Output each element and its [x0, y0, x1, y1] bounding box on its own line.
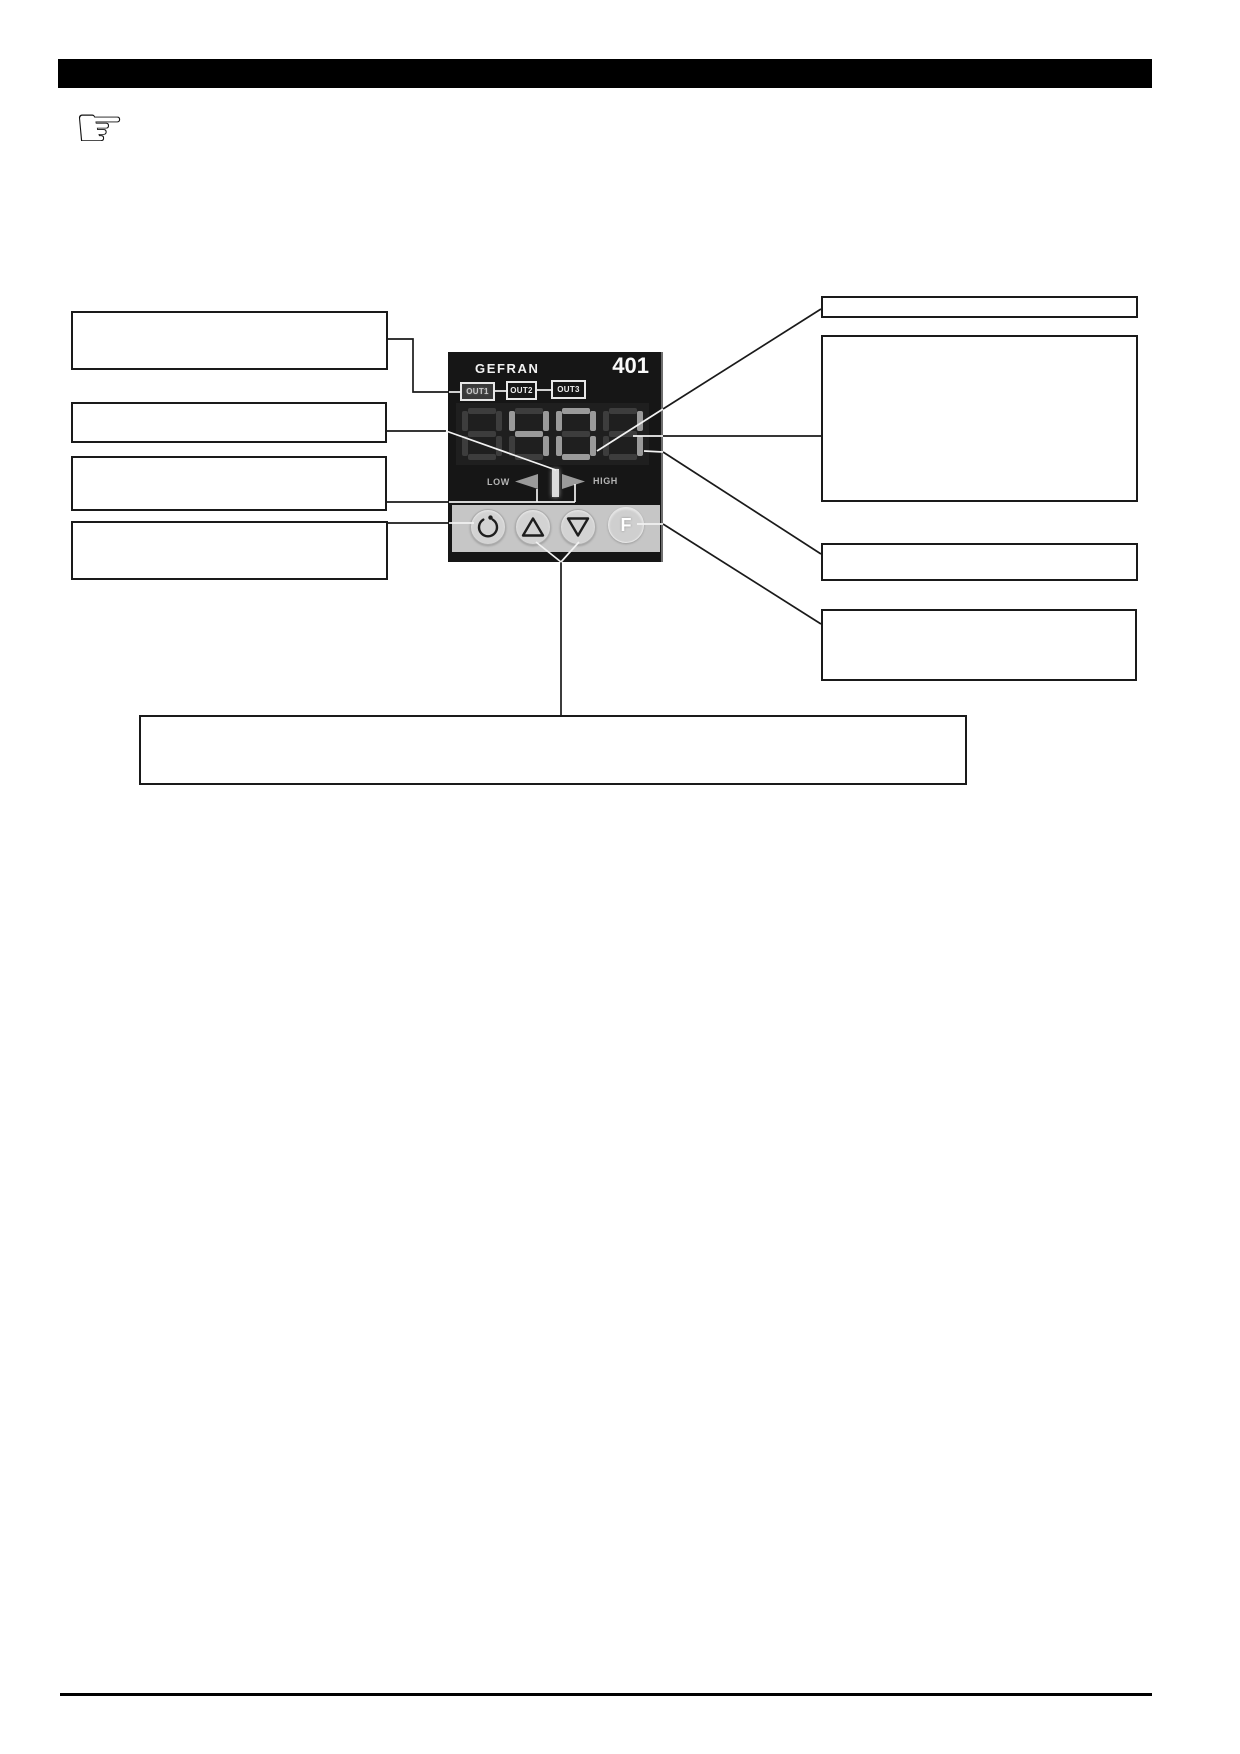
- deviation-bar-indicator: [552, 469, 559, 497]
- out3-indicator: OUT3: [551, 380, 586, 399]
- out2-indicator: OUT2: [506, 381, 537, 400]
- function-button-label: F: [621, 515, 632, 536]
- up-triangle-icon: [521, 516, 545, 538]
- display-digit-4: [508, 407, 550, 461]
- display-digit-0: [555, 407, 597, 461]
- callout-box-left-3: [71, 456, 387, 511]
- power-button[interactable]: [470, 509, 506, 545]
- callout-box-right-4: [821, 609, 1137, 681]
- high-arrow-icon: [562, 474, 585, 489]
- out1-indicator: OUT1: [460, 382, 495, 401]
- callout-box-left-4: [71, 521, 388, 580]
- display-digit-ghost: [461, 407, 503, 461]
- raise-button[interactable]: [515, 509, 551, 545]
- callout-box-left-1: [71, 311, 388, 370]
- section-header-bar: [58, 59, 1152, 88]
- low-deviation-label: LOW: [487, 477, 510, 487]
- callout-box-right-1: [821, 296, 1138, 318]
- lower-button[interactable]: [560, 509, 596, 545]
- display-digit-1: [602, 407, 644, 461]
- manual-page: ☞ GEFRAN 401 OUT1 OUT2 OUT3 LOW HIGH: [0, 0, 1240, 1754]
- keypad-strip: F: [452, 505, 660, 552]
- callout-box-bottom: [139, 715, 967, 785]
- footer-rule: [60, 1693, 1152, 1696]
- model-number: 401: [612, 353, 649, 379]
- pointing-hand-icon: ☞: [74, 100, 125, 157]
- down-triangle-icon: [566, 516, 590, 538]
- callout-box-left-2: [71, 402, 387, 443]
- leader-lines: [0, 0, 1240, 1754]
- low-arrow-icon: [515, 474, 538, 489]
- function-button[interactable]: F: [608, 507, 644, 543]
- callout-box-right-3: [821, 543, 1138, 581]
- seven-segment-display: [456, 403, 649, 465]
- high-deviation-label: HIGH: [593, 476, 618, 486]
- controller-faceplate: GEFRAN 401 OUT1 OUT2 OUT3 LOW HIGH: [448, 352, 663, 562]
- brand-logo: GEFRAN: [475, 361, 540, 376]
- power-icon: [475, 514, 501, 540]
- callout-box-right-2: [821, 335, 1138, 502]
